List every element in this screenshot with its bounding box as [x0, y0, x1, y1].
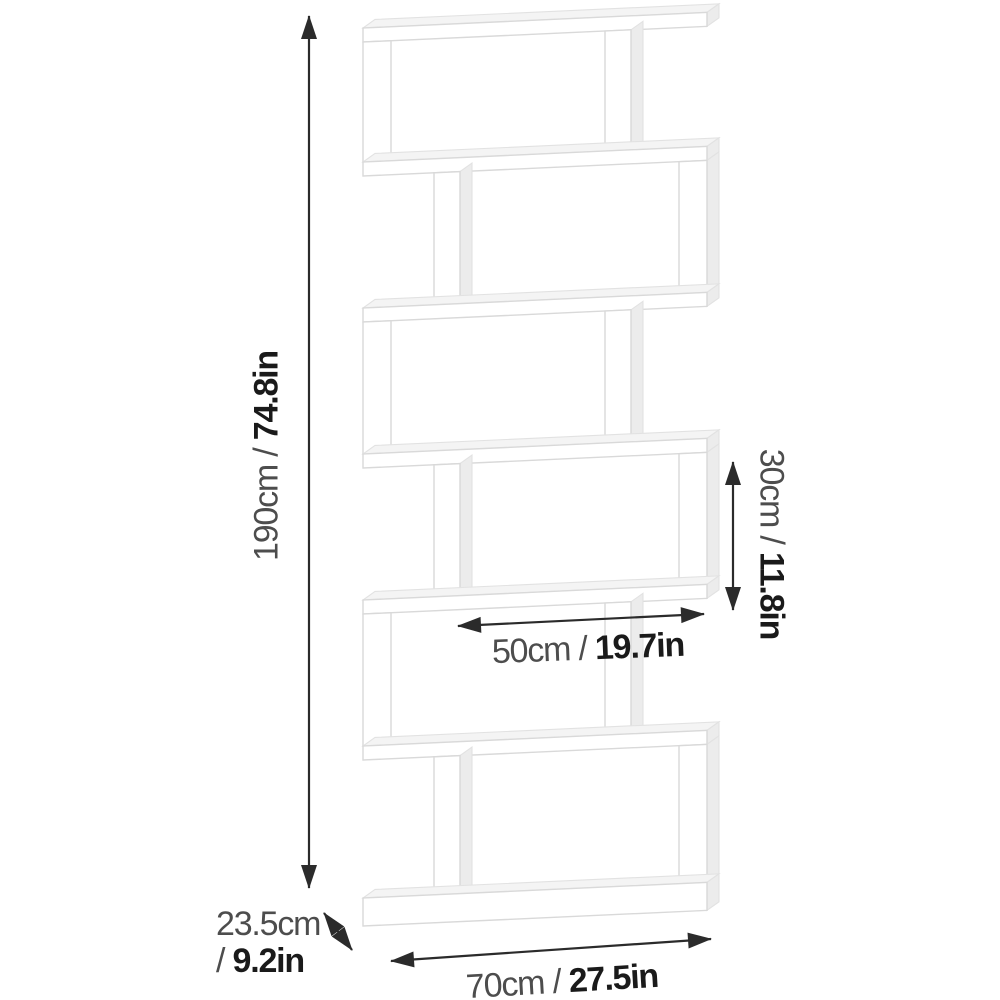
depth-metric-text: 23.5cm [216, 905, 320, 943]
shelf-width-dimension-arrow [458, 614, 704, 626]
opening-height-dimension-label: 30cm / 11.8in [753, 449, 790, 639]
shelf-board-4 [363, 430, 719, 468]
depth-imperial-text: 9.2in [233, 942, 304, 980]
bookshelf-diagram-canvas [0, 0, 1000, 1000]
shelf-width-dimension-label: 50cm / 19.7in [491, 627, 685, 671]
shelf-width-imperial-text: 19.7in [594, 626, 685, 667]
width-dimension-arrow [391, 939, 711, 961]
tier-4-panels [434, 444, 719, 597]
shelf-width-metric-text: 50cm / [491, 629, 595, 671]
shelf-board-5 [363, 576, 719, 614]
height-dimension-label: 190cm / 74.8in [249, 351, 286, 561]
tier-1-panels [363, 21, 643, 162]
dimension-diagram: 190cm / 74.8in 30cm / 11.8in 50cm / 19.7… [0, 0, 1000, 1000]
shelf-board-top [363, 4, 719, 42]
shelf-board-6 [363, 722, 719, 760]
depth-separator-text: / [216, 942, 233, 980]
tier-6-panels [434, 736, 719, 895]
shelf-board-3 [363, 284, 719, 322]
width-imperial-text: 27.5in [568, 957, 659, 1000]
base-board [363, 874, 719, 926]
depth-line1: 23.5cm [216, 906, 320, 943]
tier-3-panels [363, 301, 643, 454]
shelf-board-2 [363, 138, 719, 176]
depth-line2: / 9.2in [216, 943, 320, 980]
opening-metric-text: 30cm / [753, 449, 791, 552]
height-imperial-text: 74.8in [248, 351, 286, 440]
depth-dimension-label: 23.5cm / 9.2in [216, 906, 320, 980]
opening-imperial-text: 11.8in [753, 552, 791, 639]
depth-dimension-arrow [324, 913, 352, 950]
width-metric-text: 70cm / [465, 962, 570, 1000]
tier-2-panels [434, 152, 719, 305]
bookshelf-illustration [363, 4, 719, 926]
height-metric-text: 190cm / [248, 440, 286, 561]
